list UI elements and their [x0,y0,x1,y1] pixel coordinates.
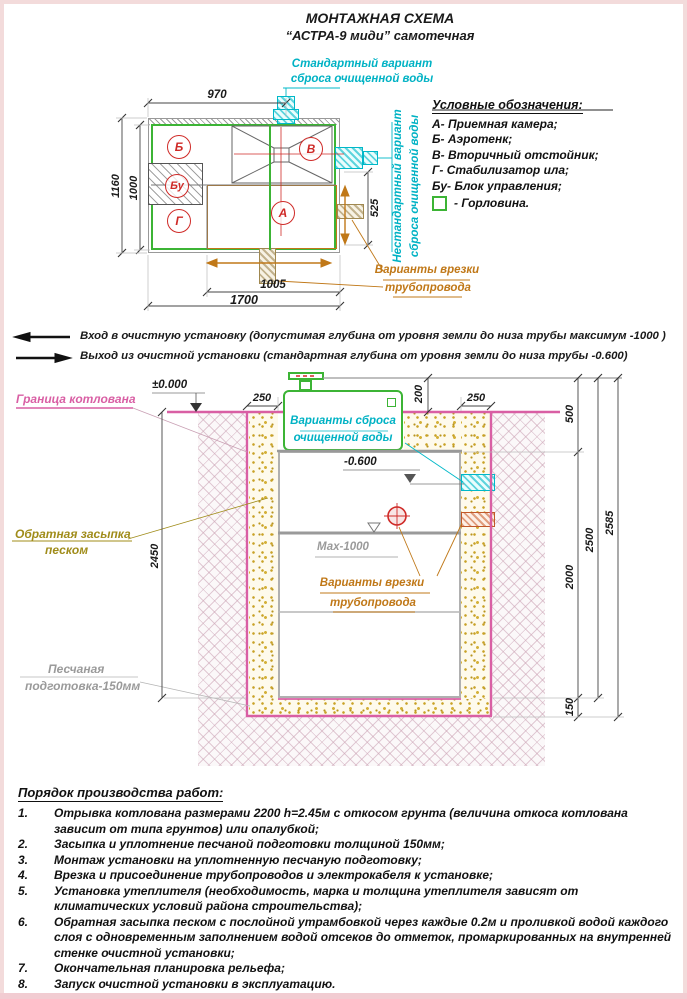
section-sand-backfill-right [461,413,490,699]
sand-base-label-line2: подготовка-150мм [25,679,140,693]
procedure-item-number: 1. [18,806,54,837]
legend-item-gorlovina-label: - Горловина. [454,196,529,211]
section-manhole-cap [288,372,324,380]
procedure-item-text: Окончательная планировка рельефа; [54,961,674,977]
procedure-item-2: 2.Засыпка и уплотнение песчаной подготов… [18,837,674,853]
section-dim-2585: 2585 [604,511,616,535]
procedure-item-text: Врезка и присоединение трубопроводов и э… [54,868,674,884]
chamber-label-control: Бу [165,174,189,198]
procedure-item-text: Монтаж установки на уплотненную песчаную… [54,853,674,869]
procedure-block: Порядок производства работ: 1.Отрывка ко… [18,784,674,992]
section-sand-bed [249,699,491,717]
legend-item-stabilizer: Г- Стабилизатор ила; [432,163,662,178]
page-frame-top [0,0,687,4]
nonstandard-outlet-label-line1: Нестандартный вариант [392,109,404,262]
section-dim-200: 200 [413,385,425,403]
section-dim-250-left: 250 [253,392,271,404]
section-dim-500: 500 [564,405,576,423]
section-sand-backfill-left [249,413,278,699]
procedure-item-8: 8.Запуск очистной установки в эксплуатац… [18,977,674,993]
procedure-item-number: 4. [18,868,54,884]
section-manhole-stem [299,380,312,391]
plan-pipe-note-line1: Варианты врезки [375,264,479,276]
standard-outlet-label-line2: сброса очищенной воды [291,73,433,85]
page-frame-right [683,0,687,999]
legend-item-settler: В- Вторичный отстойник; [432,148,662,163]
legend-title: Условные обозначения: [432,98,583,114]
level-minus-600-label: -0.600 [344,456,377,468]
procedure-item-number: 2. [18,837,54,853]
plan-right-outlet-pipe [335,147,363,169]
procedure-title: Порядок производства работ: [18,785,223,802]
procedure-item-number: 3. [18,853,54,869]
section-tank-body [278,451,461,698]
section-outlet-pipe [461,474,495,491]
section-inlet-pipe [461,512,495,527]
plan-dim-1005: 1005 [260,279,286,291]
chamber-label-reception: А [271,201,295,225]
section-dim-2450: 2450 [149,544,161,568]
procedure-item-3: 3.Монтаж установки на уплотненную песчан… [18,853,674,869]
procedure-item-number: 6. [18,915,54,962]
legend-item-control: Бу- Блок управления; [432,179,662,194]
procedure-item-number: 8. [18,977,54,993]
section-pipe-note-line2: трубопровода [330,597,416,609]
standard-outlet-label-line1: Стандартный вариант [292,58,432,70]
plan-pipe-note-line2: трубопровода [385,282,471,294]
legend: Условные обозначения: А- Приемная камера… [432,96,662,211]
procedure-item-number: 5. [18,884,54,915]
plan-dim-1160: 1160 [110,174,122,198]
backfill-label-line1: Обратная засыпка [15,527,131,541]
section-dim-2000: 2000 [564,565,576,589]
chamber-label-stabilizer: Г [167,209,191,233]
flow-note-outlet: Выход из очистной установки (стандартная… [80,350,628,362]
legend-item-reception: А- Приемная камера; [432,117,662,132]
page-frame-left [0,0,4,999]
section-pipe-note-line1: Варианты врезки [320,577,424,589]
sand-base-label-line1: Песчаная [48,662,104,676]
procedure-item-5: 5.Установка утеплителя (необходимость, м… [18,884,674,915]
legend-item-gorlovina: - Горловина. [432,196,662,211]
procedure-item-7: 7.Окончательная планировка рельефа; [18,961,674,977]
plan-dim-525: 525 [369,199,381,217]
procedure-item-text: Засыпка и уплотнение песчаной подготовки… [54,837,674,853]
level-max-1000-label: Мах-1000 [317,541,369,553]
legend-item-aerotank: Б- Аэротенк; [432,132,662,147]
plan-dim-970: 970 [207,89,226,101]
section-dim-250-right: 250 [467,392,485,404]
section-dim-2500: 2500 [584,528,596,552]
level-zero-label: ±0.000 [152,379,187,391]
section-dim-150: 150 [564,698,576,716]
procedure-item-text: Установка утеплителя (необходимость, мар… [54,884,674,915]
section-cover-notch [387,398,396,407]
procedure-item-4: 4.Врезка и присоединение трубопроводов и… [18,868,674,884]
procedure-item-text: Запуск очистной установки в эксплуатацию… [54,977,674,993]
procedure-item-text: Отрывка котлована размерами 2200 h=2.45м… [54,806,674,837]
procedure-item-6: 6.Обратная засыпка песком с послойной ут… [18,915,674,962]
page-title: МОНТАЖНАЯ СХЕМА [230,10,530,26]
discharge-variants-label-line1: Варианты сброса [290,415,396,427]
montage-scheme-drawing: МОНТАЖНАЯ СХЕМА “АСТРА-9 миди” самотечна… [0,0,687,999]
page-subtitle: “АСТРА-9 миди” самотечная [230,28,530,43]
plan-top-outlet-pipe-flange [273,109,299,120]
gorlovina-swatch-icon [432,196,447,211]
section-sand-backfill-top [404,413,461,451]
flow-note-inlet: Вход в очистную установку (допустимая гл… [80,330,666,342]
discharge-variants-label-line2: очищенной воды [294,432,393,444]
procedure-item-text: Обратная засыпка песком с послойной утра… [54,915,674,962]
plan-inlet-pipe-right [337,204,364,219]
plan-right-outlet-pipe-end [363,151,378,165]
flow-note-arrows [14,333,71,363]
chamber-label-aerotank: Б [167,135,191,159]
plan-dim-1000: 1000 [128,176,140,200]
pit-boundary-label: Граница котлована [16,392,136,406]
nonstandard-outlet-label-line2: сброса очищенной воды [409,115,421,257]
backfill-label-line2: песком [45,543,88,557]
procedure-item-1: 1.Отрывка котлована размерами 2200 h=2.4… [18,806,674,837]
page-frame-bottom [0,993,687,999]
procedure-item-number: 7. [18,961,54,977]
chamber-label-settler: В [299,137,323,161]
plan-dim-1700: 1700 [230,293,258,307]
